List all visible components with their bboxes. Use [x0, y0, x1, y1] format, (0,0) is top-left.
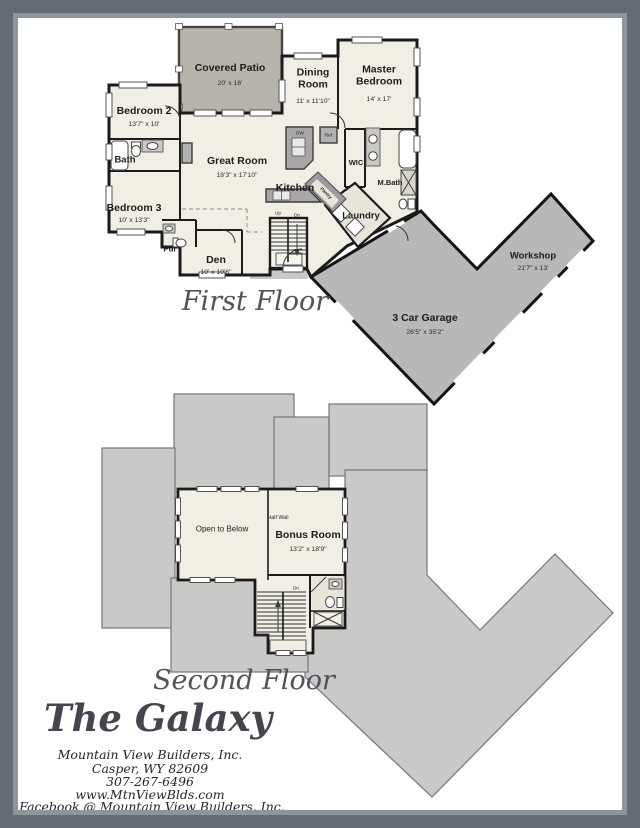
builder-social: Facebook @ Mountain View Builders, Inc. — [19, 800, 284, 814]
room-label-great-room: Great Room — [207, 156, 267, 168]
room-label-dining-room: Dining Room — [297, 67, 330, 91]
room-label-laundry: Laundry — [342, 212, 379, 223]
room-dims-garage: 26'5" x 35'2" — [406, 329, 443, 337]
room-dims-bedroom-3: 10' x 13'3" — [118, 217, 149, 225]
dishwasher-label: DW — [296, 130, 304, 135]
room-dims-bedroom-2: 13'7" x 10' — [128, 121, 159, 129]
room-dims-den: 10' x 10'6" — [200, 269, 231, 277]
plan-name: The Galaxy — [44, 696, 272, 740]
room-label-den: Den — [206, 255, 226, 267]
first-floor-title: First Floor — [182, 287, 328, 317]
builder-company: Mountain View Builders, Inc. — [58, 748, 243, 762]
room-dims-master-bedroom: 14' x 17' — [367, 96, 392, 104]
room-label-m-bath: M.Bath — [378, 179, 403, 187]
sink — [332, 582, 339, 587]
room-dims-workshop: 21'7" x 13' — [517, 265, 548, 273]
sheet: Covered Patio 20' x 16' Dining Room 11' … — [0, 0, 640, 828]
floor-plan-sheet: { "document": { "type": "architectural f… — [0, 0, 640, 828]
room-label-bedroom-3: Bedroom 3 — [107, 203, 162, 215]
room-dims-bonus-room: 13'2" x 18'9" — [289, 546, 326, 554]
fireplace — [182, 143, 192, 163]
toilet — [176, 239, 186, 247]
room-label-pdr: Pdr — [163, 246, 176, 255]
room-label-garage: 3 Car Garage — [392, 313, 457, 325]
toilet — [326, 597, 335, 608]
stair-down-label-2: Dn — [293, 585, 299, 590]
toilet — [399, 199, 407, 209]
room-label-master-bedroom: Master Bedroom — [356, 64, 402, 88]
second-floor-title: Second Floor — [153, 666, 335, 696]
room-label-wic: WIC — [349, 159, 364, 167]
sink — [147, 143, 158, 150]
room-label-bedroom-2: Bedroom 2 — [117, 106, 172, 118]
stair-down-label: Dn — [294, 212, 300, 217]
stairs-first-floor — [270, 218, 307, 268]
room-label-covered-patio: Covered Patio — [195, 63, 266, 75]
room-label-open-to-below: Open to Below — [196, 526, 248, 535]
master-bathtub — [399, 130, 416, 168]
room-label-bonus-room: Bonus Room — [275, 530, 340, 542]
room-dims-great-room: 18'3" x 17'10" — [216, 172, 257, 180]
fridge-label: Ref — [325, 132, 332, 137]
room-label-kitchen: Kitchen — [276, 183, 315, 195]
room-dims-covered-patio: 20' x 16' — [218, 80, 243, 88]
room-label-workshop: Workshop — [510, 252, 556, 263]
room-label-bath: Bath — [114, 156, 135, 167]
room-dims-dining-room: 11' x 11'10" — [296, 98, 330, 106]
stair-up-label: Up — [275, 210, 281, 215]
half-wall-label: Half Wall — [268, 516, 289, 522]
